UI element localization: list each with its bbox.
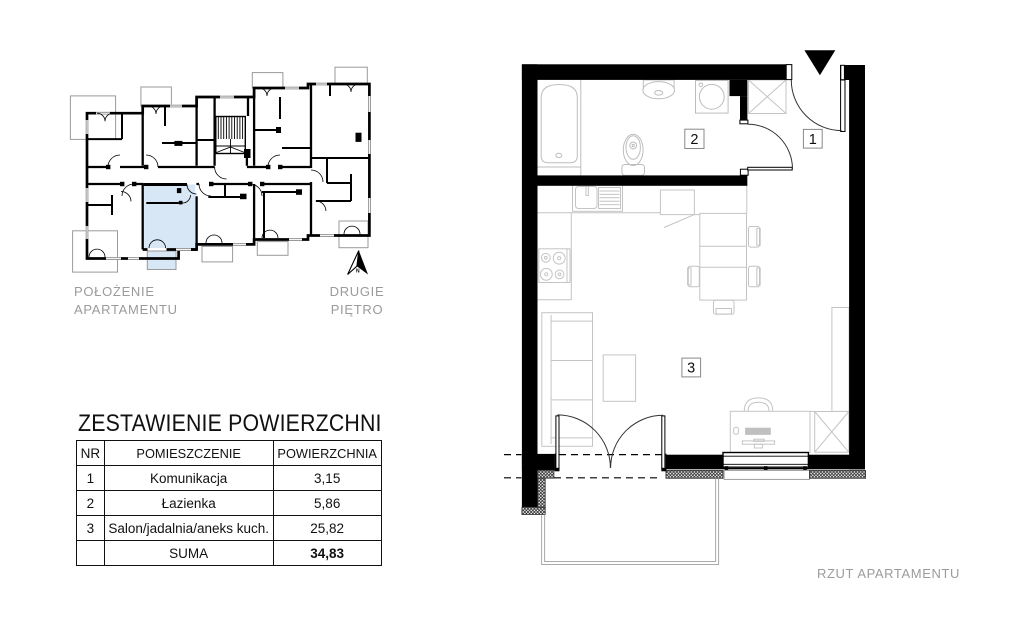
svg-text:1: 1	[809, 132, 817, 148]
svg-text:2: 2	[690, 132, 698, 148]
svg-text:N: N	[356, 269, 360, 275]
svg-text:3: 3	[687, 361, 695, 377]
